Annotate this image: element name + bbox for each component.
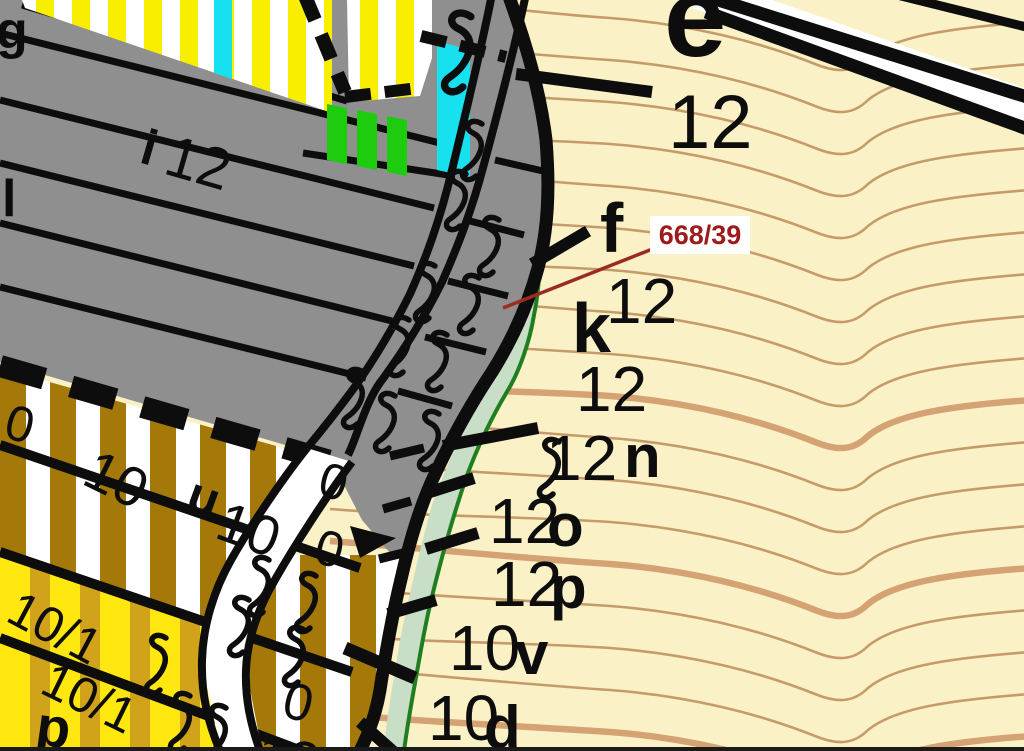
label-v: v	[515, 620, 549, 687]
label-l: l	[2, 170, 16, 228]
label-f: f	[600, 189, 624, 267]
label-n: n	[624, 423, 661, 490]
label-v-number: 10	[449, 612, 520, 684]
map-bottom-edge	[0, 747, 1024, 751]
label-p: p	[550, 554, 587, 621]
cyan-stripe	[214, 0, 232, 79]
parcel-number: 668/39	[659, 220, 742, 250]
label-g: g	[0, 2, 28, 60]
map-canvas: g l i 12 e 12 f 12 k 12 12 n 12 o 12 p 1…	[0, 0, 1024, 751]
label-d: d	[484, 694, 521, 751]
label-f-number: 12	[606, 265, 677, 337]
label-n-number: 12	[546, 422, 617, 494]
forest-map-view: g l i 12 e 12 f 12 k 12 12 n 12 o 12 p 1…	[0, 0, 1024, 751]
label-e: e	[664, 0, 726, 80]
label-e-number: 12	[668, 80, 753, 165]
label-k-number: 12	[576, 353, 647, 425]
